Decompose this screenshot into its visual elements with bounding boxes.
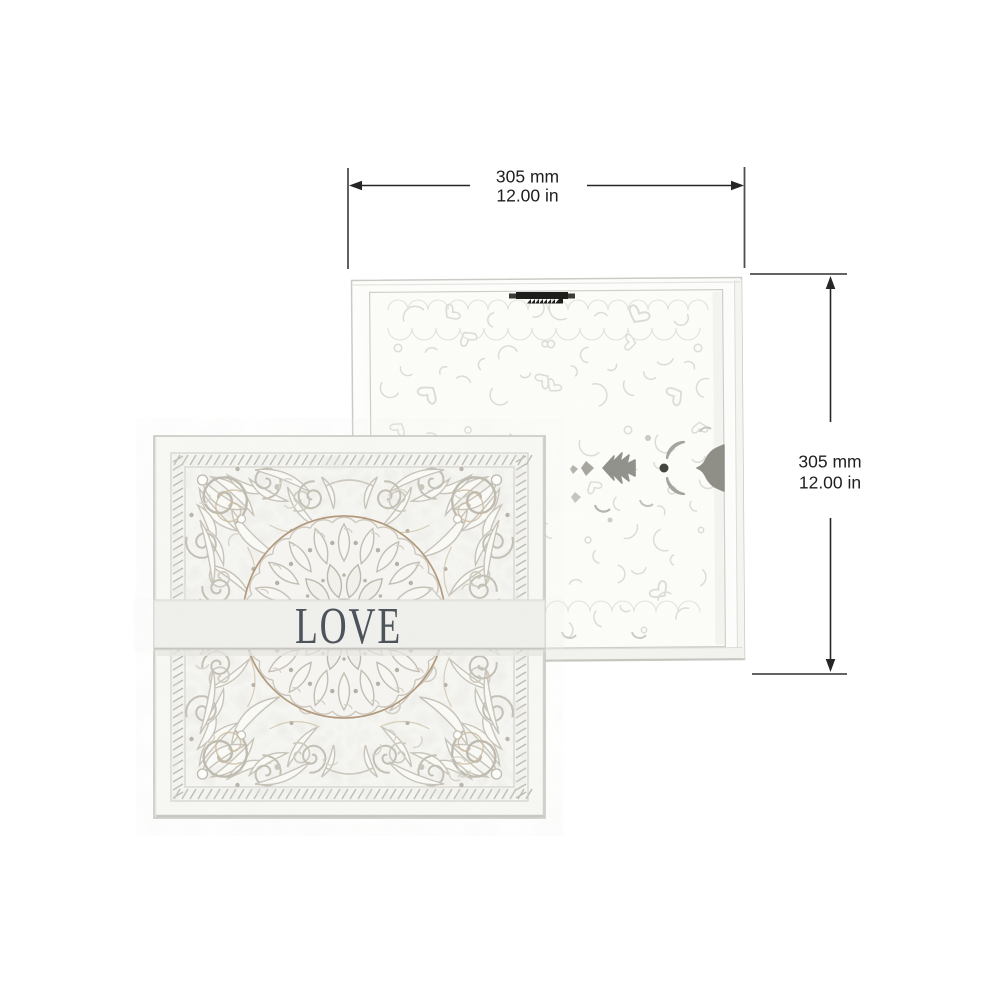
svg-text:12.00 in: 12.00 in [496,186,558,206]
svg-text:305 mm: 305 mm [496,167,559,187]
svg-text:305 mm: 305 mm [798,452,861,472]
svg-text:12.00 in: 12.00 in [799,473,861,493]
svg-text:LOVE: LOVE [295,597,402,654]
